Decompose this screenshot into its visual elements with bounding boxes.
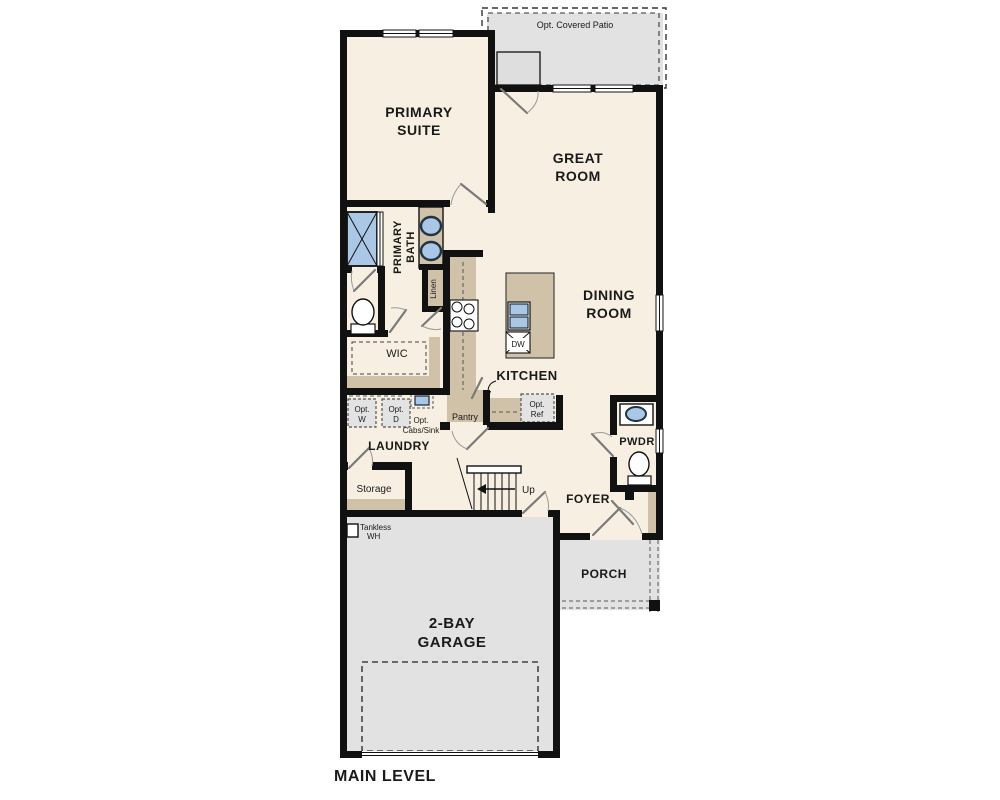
wic-shelf [347,376,440,388]
vanity-sink [421,217,441,235]
plan-title: MAIN LEVEL [334,768,436,785]
label-storage: Storage [356,484,391,495]
toilet [352,299,374,325]
label-tankless-wh: WH [367,532,381,541]
wall-segment [419,264,450,270]
label-great-room: ROOM [555,168,601,184]
wic-chase [429,337,440,388]
wall-segment [340,462,348,470]
tankless-water-heater [347,524,358,537]
label-opt-washer: Opt. [354,405,369,414]
pwdr-toilet [629,452,649,476]
label-pantry: Pantry [452,412,479,422]
wall-segment [443,250,483,257]
wall-segment [560,533,590,540]
porch-post [649,600,660,611]
wall-segment [642,533,663,540]
wall-segment [488,37,495,213]
wall-segment [487,422,563,430]
wall-segment [378,273,385,337]
wall-segment [340,30,347,517]
wall-segment [340,510,522,517]
label-wic: WIC [386,348,407,360]
label-tankless-wh: Tankless [360,523,391,532]
foyer-side-panel [648,492,657,533]
label-dining-room: DINING [583,287,635,303]
label-opt-ref: Ref [531,410,544,419]
label-stairs-up: Up [522,485,535,496]
wall-segment [610,395,617,435]
vanity-sink [421,242,441,260]
label-primary-bath: BATH [405,231,417,263]
label-laundry: LAUNDRY [368,439,430,453]
label-covered-patio: Opt. Covered Patio [537,20,614,30]
wall-segment [443,250,450,395]
wall-segment [340,30,495,37]
pwdr-sink [626,407,646,421]
label-opt-dryer: Opt. [388,405,403,414]
floor-plan-svg: Opt. Covered Patio PRIMARY SUITE GREAT R… [0,0,1000,800]
label-dining-room: ROOM [586,305,632,321]
label-opt-cabs-sink: Opt. [413,416,428,425]
label-foyer: FOYER [566,492,610,506]
wall-segment [610,395,663,402]
wall-segment [553,510,560,758]
wall-segment [422,270,428,312]
wall-segment [440,422,450,430]
label-primary-suite: PRIMARY [385,104,453,120]
wall-segment [610,485,663,492]
wall-segment [548,510,560,517]
label-pwdr: PWDR [619,436,655,448]
island-sink-bowl [510,304,528,315]
wall-segment [340,388,447,395]
pwdr-toilet-tank [628,476,651,485]
wall-segment [340,510,347,758]
island-sink-bowl [510,317,528,328]
label-dishwasher: DW [511,340,525,349]
label-opt-dryer: D [393,415,399,424]
opt-sink [415,396,429,405]
label-opt-ref: Opt. [529,400,544,409]
patio-step [497,52,540,85]
wall-segment [422,306,450,312]
wall-segment [405,462,412,517]
wall-segment [625,492,634,500]
label-opt-cabs-sink: Cabs/Sink [403,426,440,435]
wall-segment [340,200,450,207]
label-primary-bath: PRIMARY [392,220,404,274]
label-garage: 2-BAY [429,615,475,632]
label-kitchen: KITCHEN [496,368,557,383]
wall-segment [340,266,352,273]
storage-shelf [347,499,405,510]
wall-segment [486,200,495,207]
label-primary-suite: SUITE [397,122,441,138]
floor-plan-image: Opt. Covered Patio PRIMARY SUITE GREAT R… [0,0,1000,800]
stair-rail [467,466,521,473]
label-garage: GARAGE [418,634,487,651]
label-porch: PORCH [581,567,627,581]
wall-segment [556,395,563,430]
label-opt-washer: W [358,415,366,424]
label-linen: Linen [429,279,438,299]
label-great-room: GREAT [553,150,603,166]
wall-segment [377,266,385,273]
